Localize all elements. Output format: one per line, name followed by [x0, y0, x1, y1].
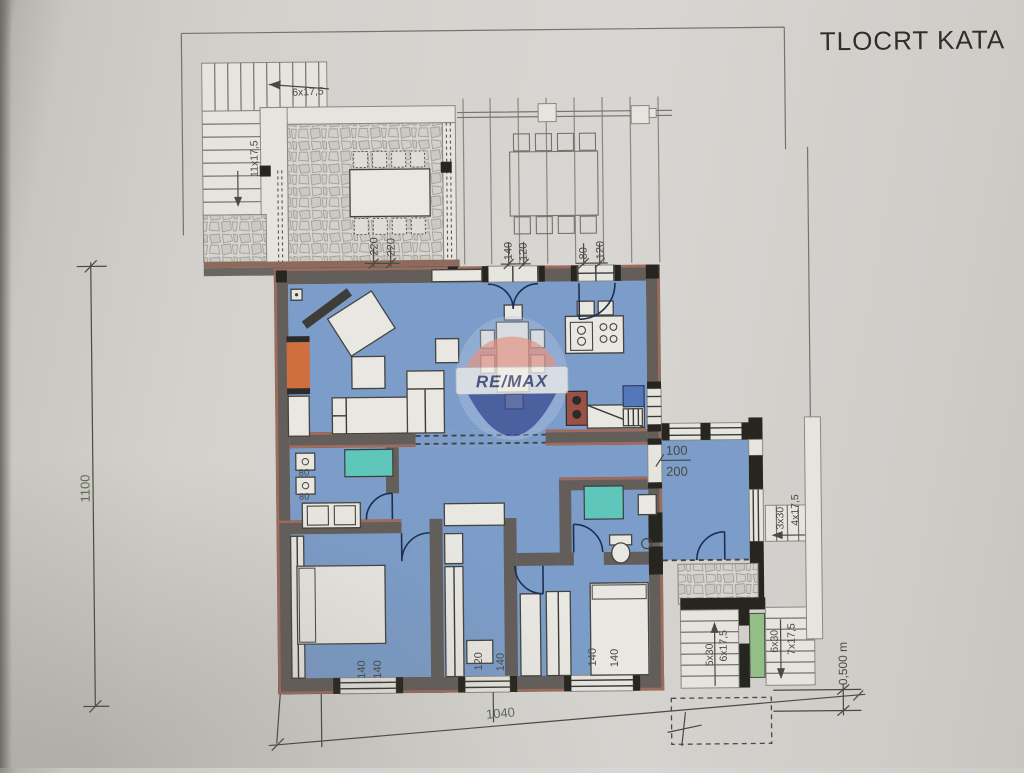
- dim-win-b2-b: 140: [495, 653, 507, 671]
- dim-bath-80b: 80: [299, 492, 310, 503]
- dim-win-top1-b: 120: [518, 243, 530, 261]
- floor-plan-drawing: RE/MAX: [0, 0, 1024, 773]
- dim-total-height: 1100: [77, 474, 92, 502]
- dim-stairs-left: 11x17,5: [248, 140, 260, 177]
- dim-stairs-small-b: 4x17,5: [789, 494, 801, 526]
- closet-corridor: [445, 534, 464, 677]
- dim-stairs-lr-a: 6x30: [769, 630, 781, 653]
- dim-door-height: 200: [666, 464, 688, 479]
- watermark-text: RE/MAX: [476, 372, 549, 392]
- dim-stairs-ll-a: 5x30: [704, 643, 716, 666]
- stairs-small: [765, 505, 809, 541]
- dim-terrace-2: 220: [385, 238, 397, 256]
- pergola: [457, 96, 674, 264]
- dim-total-width: 1040: [485, 704, 515, 722]
- dim-win-top1-a: 140: [503, 242, 515, 260]
- dim-stairs-top: 6x17,5: [292, 85, 324, 98]
- page-edge-shadow: [0, 0, 12, 768]
- dim-stairs-ll-b: 6x17,5: [718, 630, 730, 662]
- dim-offset: 0,500 m: [836, 642, 850, 686]
- dim-bath-80a: 80: [299, 468, 310, 479]
- dim-win-b2-a: 120: [473, 652, 485, 670]
- dim-terrace-1: 220: [368, 237, 380, 255]
- floor-plan-photo: RE/MAX TLOCRT KATA 6x17,5 11x17,5 220 22…: [0, 0, 1024, 768]
- hidden-outline: [667, 697, 771, 746]
- drawing-sheet: RE/MAX TLOCRT KATA 6x17,5 11x17,5 220 22…: [0, 0, 1024, 773]
- dim-win-b3-a: 140: [587, 648, 599, 666]
- dim-win-b3-b: 140: [609, 649, 621, 667]
- pergola-table: [509, 133, 598, 234]
- dim-win-b1-a: 140: [356, 660, 368, 678]
- dim-stairs-lr-b: 7x17,5: [786, 623, 798, 655]
- dim-win-top2-a: 80: [578, 247, 590, 259]
- dim-win-b1-b: 140: [372, 660, 384, 678]
- dim-door-width: 100: [666, 443, 688, 458]
- dim-win-top2-b: 120: [595, 241, 607, 259]
- drawing-title: TLOCRT KATA: [820, 24, 1006, 57]
- dim-stairs-small-a: 3x30: [774, 507, 786, 530]
